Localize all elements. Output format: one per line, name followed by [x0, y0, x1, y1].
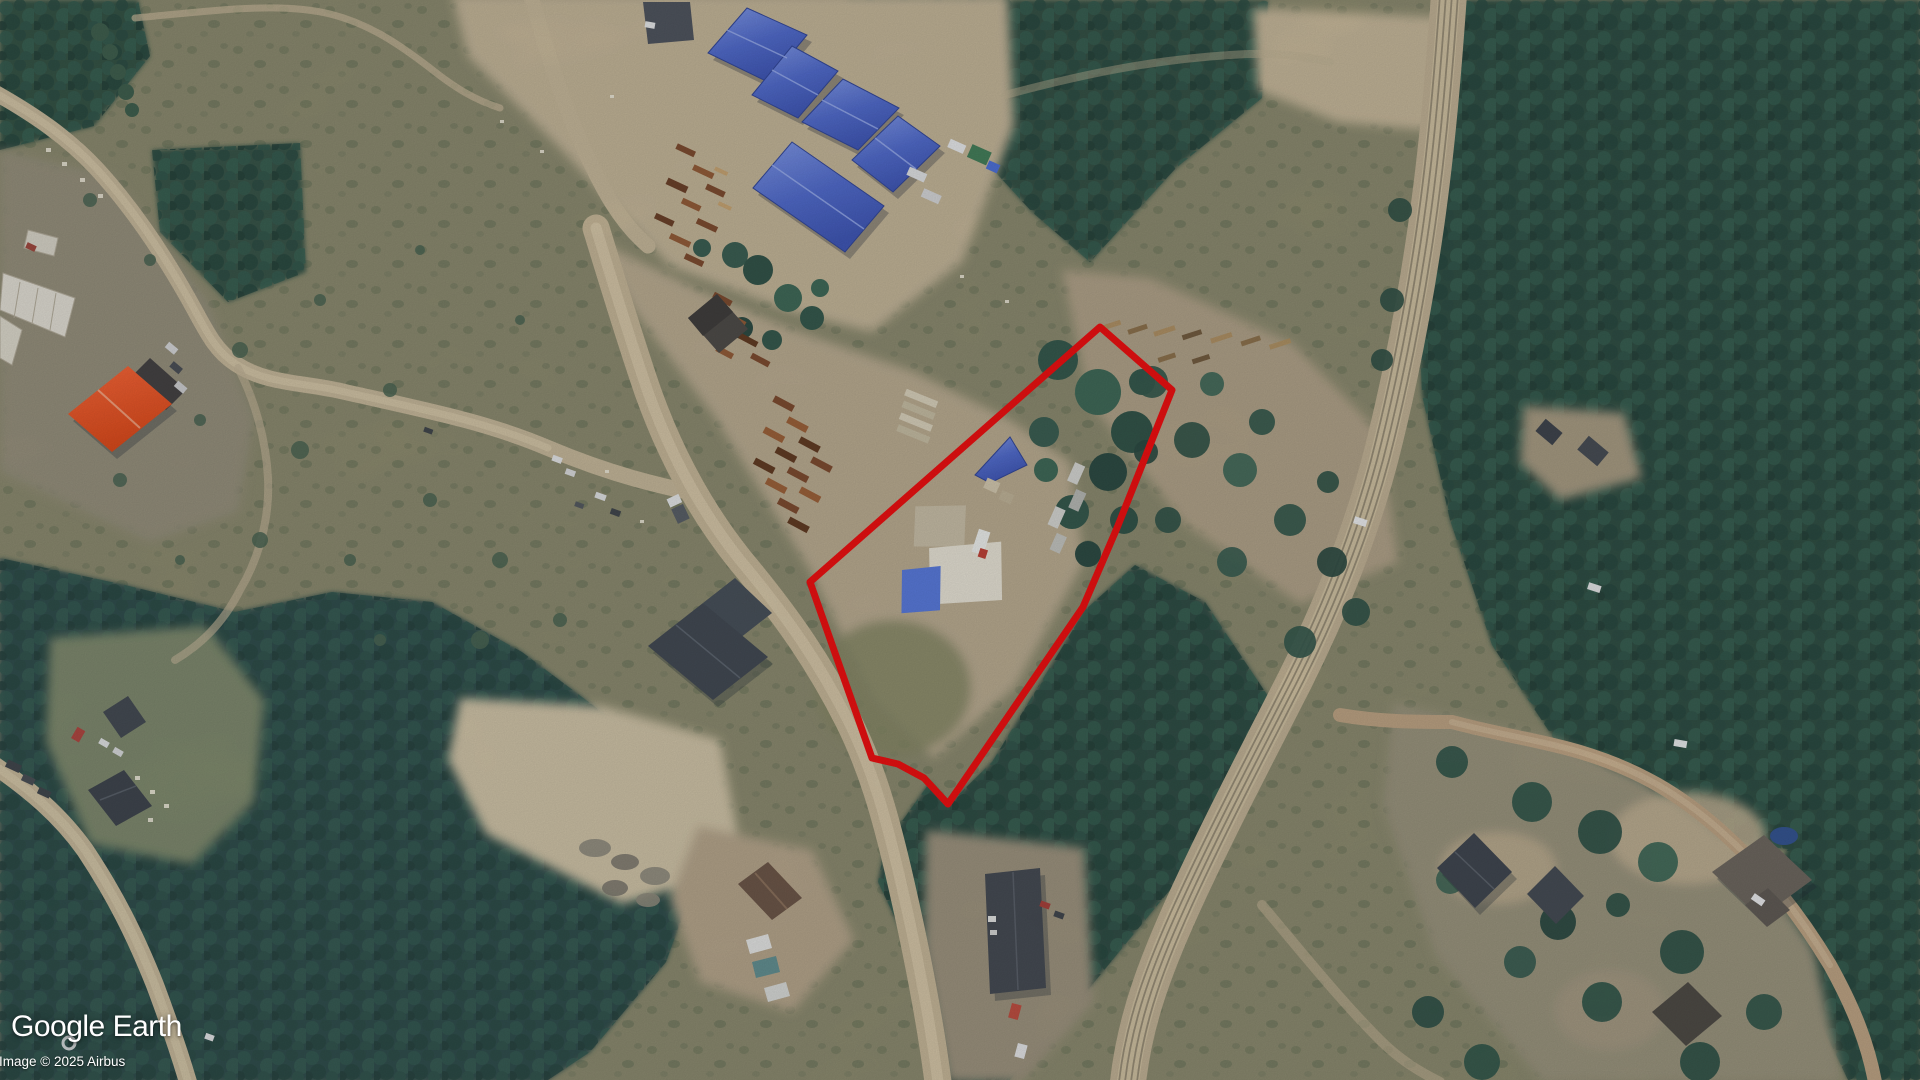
satellite-map-canvas[interactable]	[0, 0, 1920, 1080]
imagery-texture	[0, 0, 1920, 1080]
copyright-text: Image © 2025 Airbus	[0, 1054, 125, 1069]
google-earth-logo: Google Earth	[11, 1010, 182, 1044]
imagery-copyright: Image © 2025 Airbus	[8, 1054, 125, 1069]
google-earth-viewport[interactable]: Google Earth Image © 2025 Airbus	[0, 0, 1920, 1080]
